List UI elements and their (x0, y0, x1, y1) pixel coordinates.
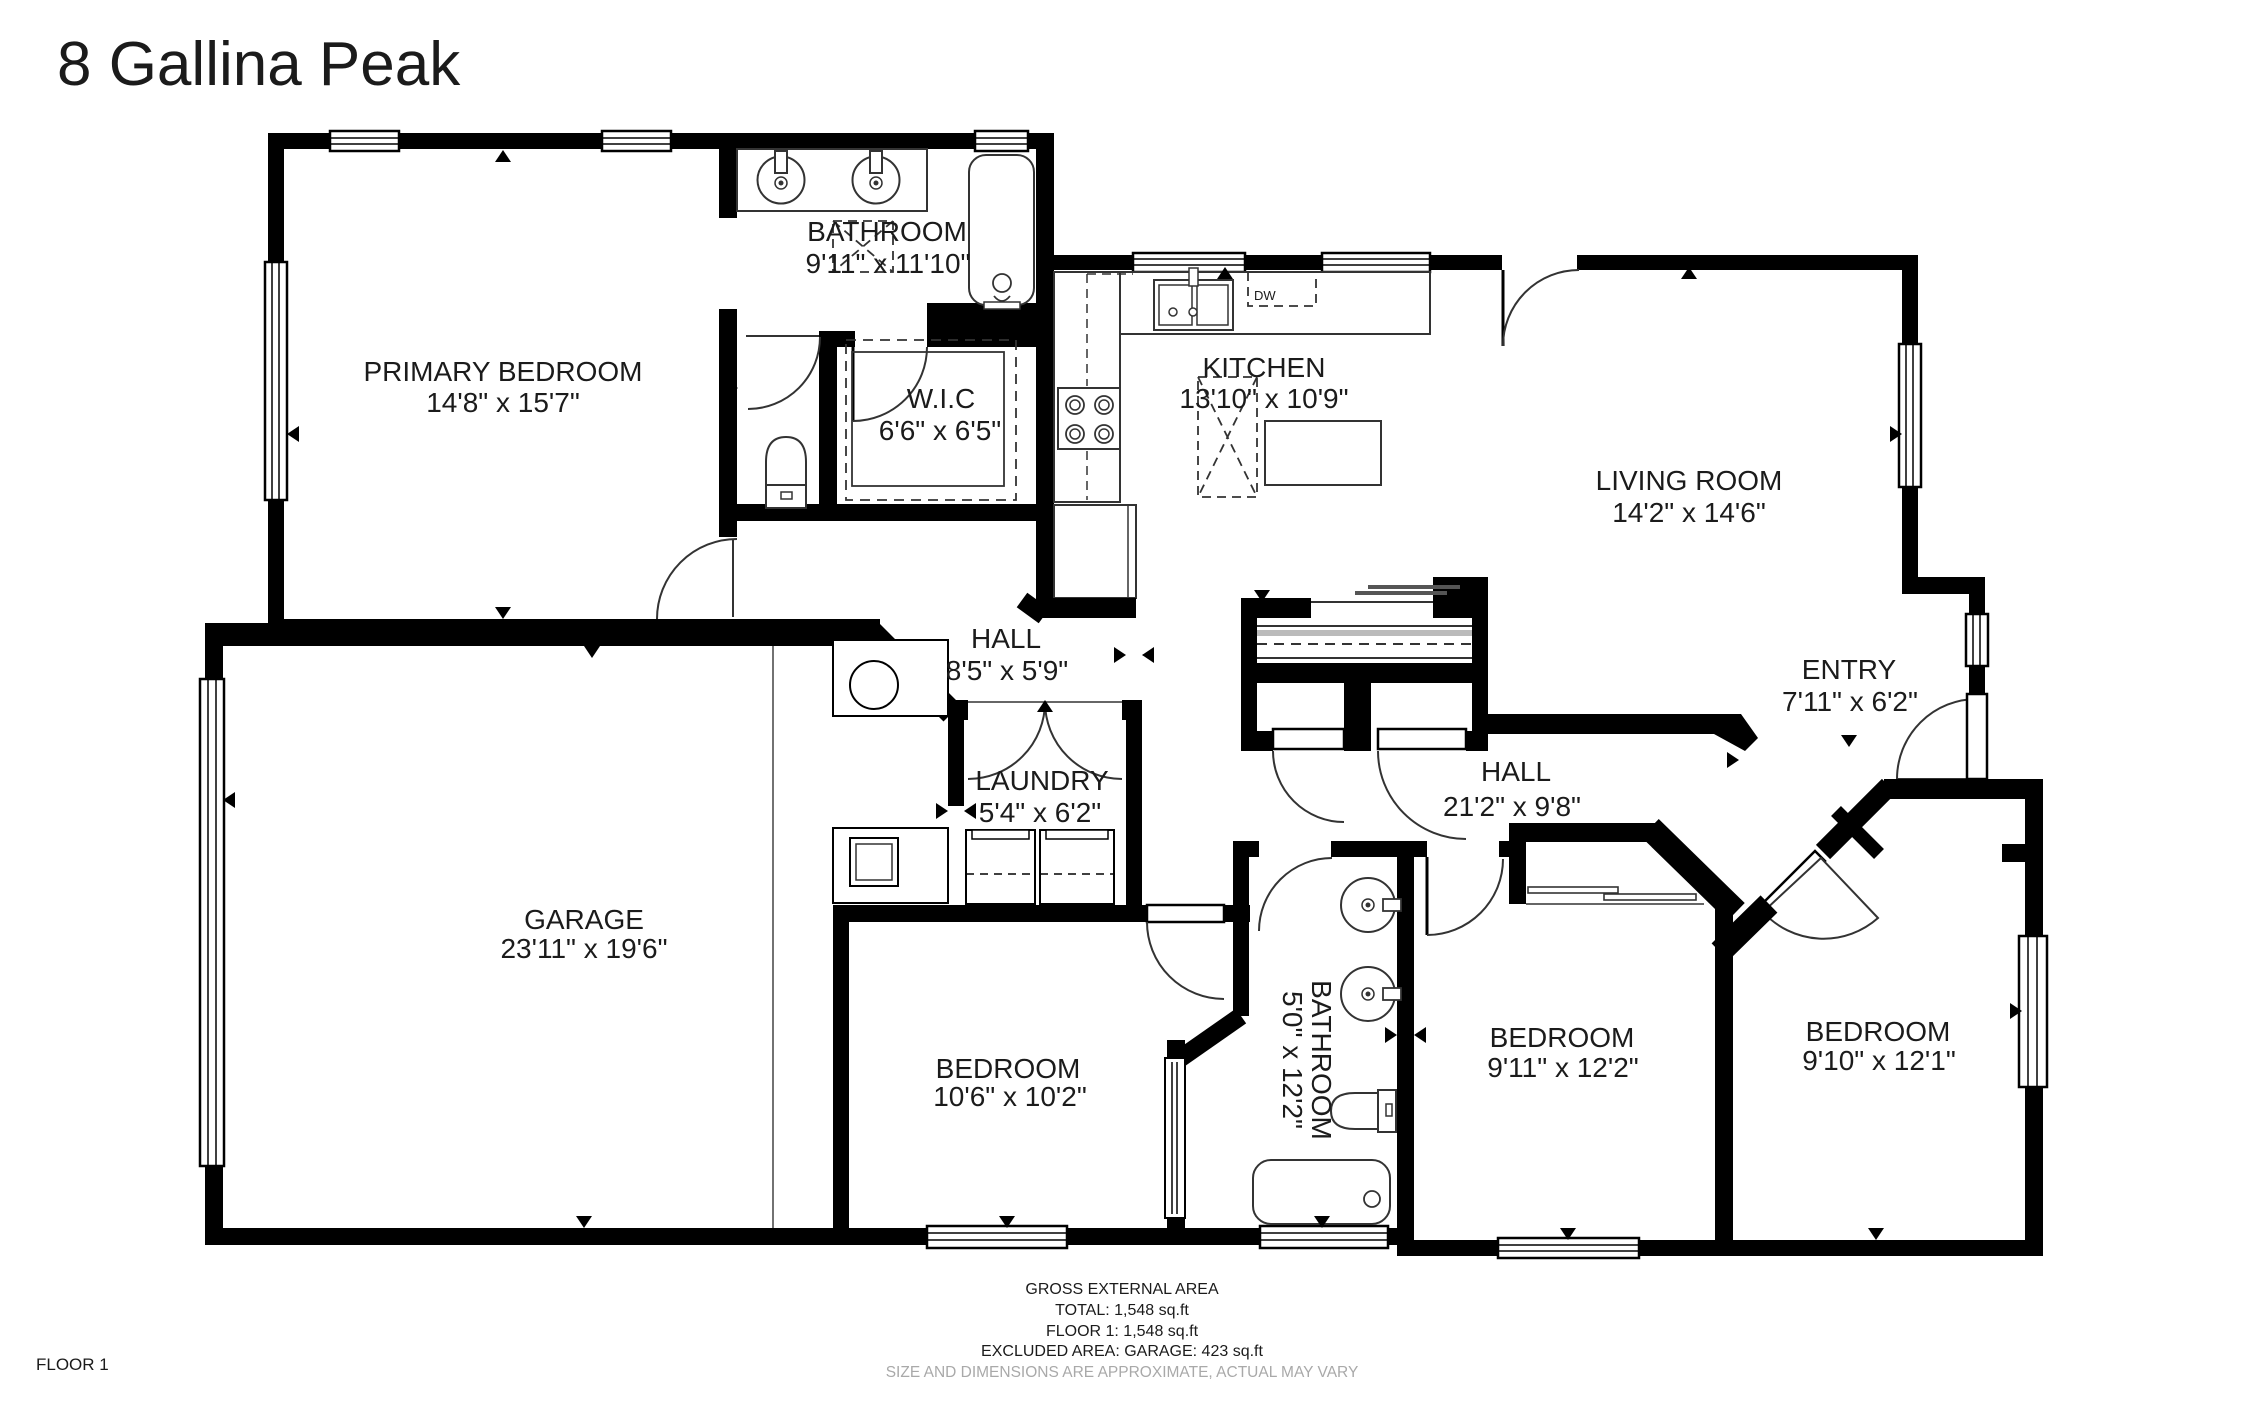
svg-text:W.I.C: W.I.C (907, 383, 975, 414)
svg-text:BATHROOM: BATHROOM (807, 216, 967, 247)
svg-text:14'8" x 15'7": 14'8" x 15'7" (426, 387, 580, 418)
svg-text:KITCHEN: KITCHEN (1203, 352, 1326, 383)
svg-text:GROSS EXTERNAL AREA: GROSS EXTERNAL AREA (1025, 1281, 1219, 1298)
svg-text:5'4" x 6'2": 5'4" x 6'2" (979, 797, 1101, 828)
svg-text:9'11" x 12'2": 9'11" x 12'2" (1487, 1052, 1638, 1083)
svg-text:EXCLUDED AREA: GARAGE: 423 sq.: EXCLUDED AREA: GARAGE: 423 sq.ft (981, 1343, 1263, 1360)
svg-text:SIZE AND DIMENSIONS ARE APPROX: SIZE AND DIMENSIONS ARE APPROXIMATE, ACT… (886, 1364, 1359, 1381)
svg-text:7'11" x 6'2": 7'11" x 6'2" (1782, 686, 1918, 717)
svg-text:BATHROOM: BATHROOM (1306, 980, 1337, 1140)
svg-text:21'2" x 9'8": 21'2" x 9'8" (1443, 791, 1581, 822)
svg-text:5'0" x 12'2": 5'0" x 12'2" (1277, 991, 1308, 1129)
svg-text:8'5" x 5'9": 8'5" x 5'9" (946, 655, 1068, 686)
svg-text:TOTAL: 1,548 sq.ft: TOTAL: 1,548 sq.ft (1055, 1302, 1189, 1319)
svg-text:PRIMARY BEDROOM: PRIMARY BEDROOM (363, 356, 642, 387)
svg-text:HALL: HALL (971, 623, 1041, 654)
svg-text:FLOOR 1: 1,548 sq.ft: FLOOR 1: 1,548 sq.ft (1046, 1323, 1199, 1340)
svg-text:LIVING ROOM: LIVING ROOM (1596, 465, 1783, 496)
svg-text:8 Gallina Peak: 8 Gallina Peak (57, 30, 461, 99)
svg-text:ENTRY: ENTRY (1802, 654, 1897, 685)
svg-text:10'6" x 10'2": 10'6" x 10'2" (933, 1081, 1087, 1112)
svg-text:9'10" x 12'1": 9'10" x 12'1" (1802, 1045, 1956, 1076)
svg-text:FLOOR 1: FLOOR 1 (36, 1355, 109, 1374)
svg-text:BEDROOM: BEDROOM (936, 1053, 1081, 1084)
svg-text:BEDROOM: BEDROOM (1490, 1022, 1635, 1053)
svg-text:13'10" x 10'9": 13'10" x 10'9" (1179, 383, 1348, 414)
svg-text:HALL: HALL (1481, 756, 1551, 787)
svg-text:6'6" x 6'5": 6'6" x 6'5" (879, 415, 1001, 446)
svg-text:LAUNDRY: LAUNDRY (975, 765, 1109, 796)
svg-text:23'11" x 19'6": 23'11" x 19'6" (500, 933, 667, 964)
svg-text:DW: DW (1254, 288, 1276, 303)
svg-text:BEDROOM: BEDROOM (1806, 1016, 1951, 1047)
svg-text:GARAGE: GARAGE (524, 904, 644, 935)
svg-text:9'11" x 11'10": 9'11" x 11'10" (806, 248, 971, 279)
svg-text:14'2" x 14'6": 14'2" x 14'6" (1612, 497, 1766, 528)
